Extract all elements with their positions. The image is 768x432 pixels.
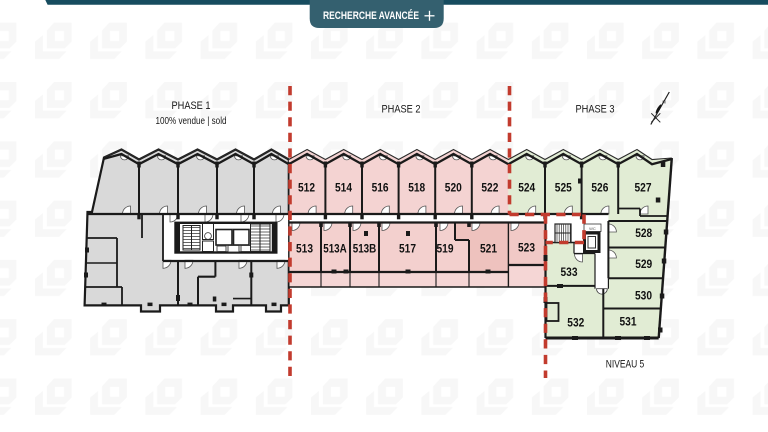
svg-text:527: 527 xyxy=(635,180,652,194)
svg-text:PHASE 2: PHASE 2 xyxy=(382,104,421,116)
svg-text:517: 517 xyxy=(399,241,416,255)
svg-text:WC: WC xyxy=(589,226,596,231)
svg-text:N: N xyxy=(662,100,665,105)
svg-text:PHASE 1: PHASE 1 xyxy=(172,100,211,112)
svg-text:524: 524 xyxy=(518,180,535,194)
svg-text:533: 533 xyxy=(561,265,578,279)
svg-text:531: 531 xyxy=(620,314,637,328)
svg-text:513A: 513A xyxy=(323,241,347,255)
svg-text:525: 525 xyxy=(555,180,572,194)
svg-text:520: 520 xyxy=(445,180,462,194)
svg-text:100% vendue | sold: 100% vendue | sold xyxy=(156,116,227,127)
svg-text:RECHERCHE AVANCÉE: RECHERCHE AVANCÉE xyxy=(323,9,419,22)
svg-text:530: 530 xyxy=(635,289,652,303)
svg-text:516: 516 xyxy=(372,180,389,194)
svg-text:513B: 513B xyxy=(353,241,377,255)
svg-text:513: 513 xyxy=(296,241,313,255)
svg-text:522: 522 xyxy=(481,180,498,194)
svg-text:512: 512 xyxy=(298,180,315,194)
svg-text:521: 521 xyxy=(480,241,497,255)
svg-text:514: 514 xyxy=(335,180,352,194)
svg-text:528: 528 xyxy=(635,226,652,240)
svg-text:NIVEAU 5: NIVEAU 5 xyxy=(606,359,645,371)
svg-text:523: 523 xyxy=(518,240,535,254)
svg-text:526: 526 xyxy=(591,180,608,194)
svg-text:519: 519 xyxy=(437,241,454,255)
svg-text:PHASE 3: PHASE 3 xyxy=(576,104,615,116)
svg-text:529: 529 xyxy=(635,257,652,271)
svg-text:532: 532 xyxy=(567,315,584,329)
svg-text:518: 518 xyxy=(408,180,425,194)
